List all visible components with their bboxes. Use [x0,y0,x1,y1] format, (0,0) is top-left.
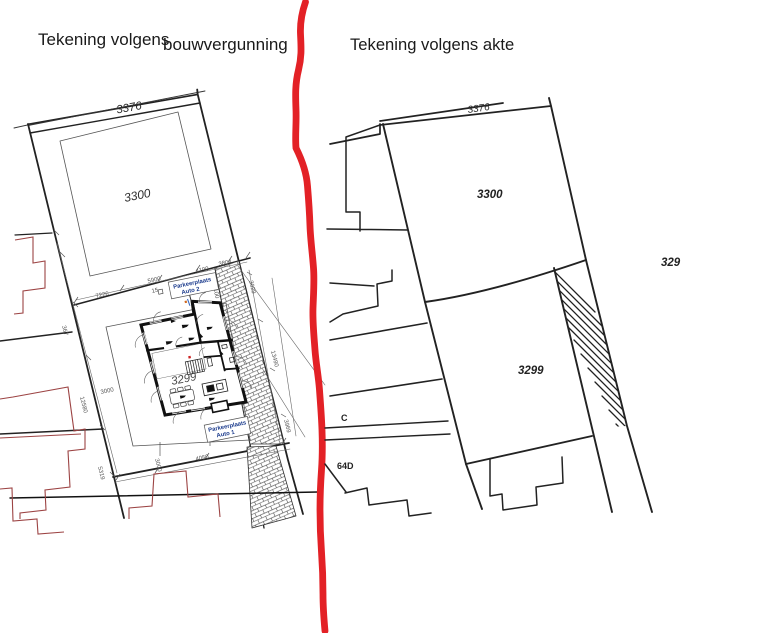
svg-text:3300: 3300 [477,189,503,201]
svg-text:64D: 64D [337,461,354,471]
svg-text:Tekening volgens: Tekening volgens [38,30,169,49]
svg-text:bouwvergunning: bouwvergunning [163,35,288,54]
svg-text:3299: 3299 [518,365,544,377]
svg-text:C: C [341,413,348,423]
svg-text:329: 329 [661,257,681,269]
svg-text:Tekening volgens akte: Tekening volgens akte [350,35,514,54]
